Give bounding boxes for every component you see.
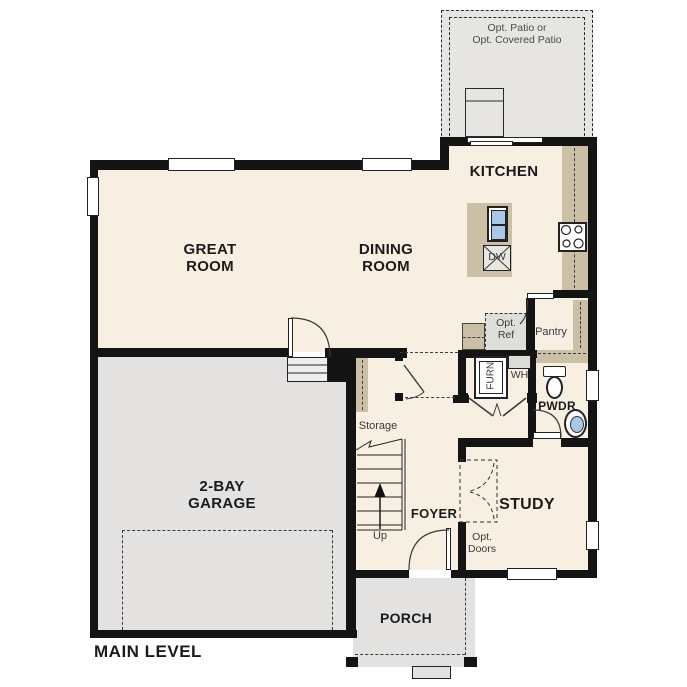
wall-right-exterior [588,137,597,578]
great-room-label-line2: ROOM [150,259,270,276]
dining-room-label-line1: DINING [326,242,446,259]
garage-door-dashed-top [122,530,332,531]
water-heater [508,355,531,369]
kitchen-label: KITCHEN [454,164,554,181]
porch-label: PORCH [376,611,436,626]
front-door-threshold [409,570,451,578]
wall-study-top-left [458,438,533,447]
porch-step [412,666,451,679]
storage-label: Storage [354,420,402,433]
great-room-label-line1: GREAT [150,242,270,259]
powder-door-leaf [533,432,561,439]
wall-garage-bottom [90,630,357,638]
powder-label: PWDR [535,400,579,413]
ref-counter-dashed-line [463,337,485,338]
garage-label-line1: 2-BAY [162,479,282,496]
wall-study-top-right [561,438,595,447]
storage-strip-dashed-line [362,360,363,410]
window-great-room-left [87,177,99,216]
garage-entry-door-leaf [288,318,293,357]
patio-label-line1: Opt. Patio or [443,22,591,34]
great-room-label: GREAT ROOM [150,242,270,275]
plan-title: MAIN LEVEL [94,643,234,662]
sink-basin-bottom [491,225,506,240]
window-great-room-top [168,158,235,171]
porch-post-left [346,657,358,667]
cooktop [558,222,587,252]
wall-furnace-left [458,358,466,398]
patio-label-line2: Opt. Covered Patio [443,34,591,46]
pantry-door-leaf [527,293,554,299]
pantry-powder-cabinet-band [536,350,588,363]
porch-dashed-right [465,578,466,655]
sink-basin-top [491,210,506,225]
wall-study-left-upper [458,447,466,462]
wall-foyer-hall-stub [453,395,469,403]
powder-sink [564,409,587,438]
pantry-label: Pantry [529,326,573,339]
porch-post-right [464,657,477,667]
dining-room-label: DINING ROOM [326,242,446,275]
furnace-label: FURN [485,359,497,393]
foyer-label: FOYER [408,507,460,521]
porch-dashed-bottom [355,654,465,655]
wall-study-bottom-right [557,570,595,578]
front-door-leaf [446,528,451,570]
wall-greatroom-garage [95,348,291,357]
opt-doors-label-line1: Opt. [462,531,502,543]
window-dining-top [362,158,412,171]
opt-ref-label-line1: Opt. [485,317,527,329]
window-study-bottom [507,568,557,580]
garage-door-dashed-right [332,530,333,630]
study-label: STUDY [494,496,560,514]
dishwasher-label: DW [483,251,511,263]
garage-entry-step [287,357,328,382]
wall-left-exterior [90,160,98,630]
garage-door-dashed-left [122,530,123,630]
wall-kitchen-bottom-right [553,290,597,298]
hall-opening-dashed-bottom [405,397,455,398]
patio-label: Opt. Patio or Opt. Covered Patio [443,22,591,46]
opt-doors-label-line2: Doors [462,543,502,555]
toilet-bowl [546,376,563,399]
window-powder-right [586,370,599,401]
water-heater-label: WH [506,369,533,381]
opt-ref-label-line2: Ref [485,329,527,341]
cabinet-band-dashed-line [538,353,586,354]
pantry-shelf-dashed-line [580,302,581,348]
hall-opening-dashed-top [400,352,458,353]
patio-sliding-door-inner [470,141,513,146]
window-study-right [586,521,599,550]
floor-plan: Opt. Patio or Opt. Covered Patio Opt. Re… [0,0,687,687]
powder-sink-basin [570,416,584,433]
garage-label: 2-BAY GARAGE [162,479,282,512]
opt-ref-label: Opt. Ref [485,317,527,341]
wall-foyer-bottom-right [450,570,507,578]
counter-dashed-line [574,148,575,288]
patio-step [465,88,504,137]
dining-room-label-line2: ROOM [326,259,446,276]
kitchen-counter-right [562,146,588,290]
stairs-up-label: Up [366,530,394,543]
wall-garage-corner-block [325,357,348,382]
wall-garage-right [346,358,356,630]
wall-pantry-west [526,298,535,350]
opt-doors-label: Opt. Doors [462,531,502,555]
wall-hall-stub-bottom [395,393,403,401]
wall-foyer-bottom-left [346,570,410,578]
garage-label-line2: GARAGE [162,496,282,513]
island-sink [487,206,508,242]
